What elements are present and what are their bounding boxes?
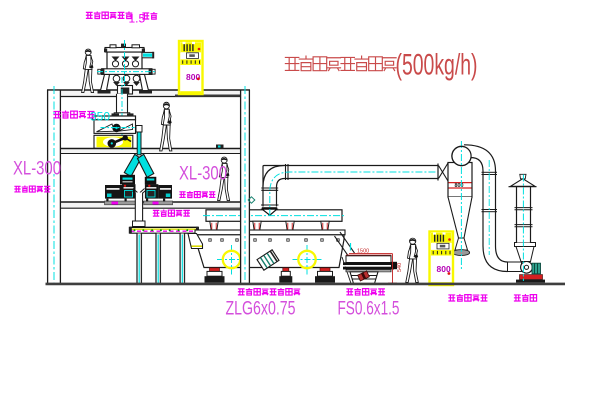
svg-text:800: 800 <box>455 183 464 189</box>
svg-text:(500kg/h): (500kg/h) <box>396 49 478 82</box>
svg-text:350: 350 <box>90 110 110 124</box>
svg-text:FS0.6x1.5: FS0.6x1.5 <box>338 298 400 320</box>
svg-text:ZLG6x0.75: ZLG6x0.75 <box>226 298 296 320</box>
svg-text:540: 540 <box>397 263 403 272</box>
svg-text:800: 800 <box>186 72 200 82</box>
svg-text:XL-300: XL-300 <box>13 159 61 180</box>
svg-text:XL-300: XL-300 <box>179 164 227 185</box>
svg-text:1500: 1500 <box>357 249 369 255</box>
